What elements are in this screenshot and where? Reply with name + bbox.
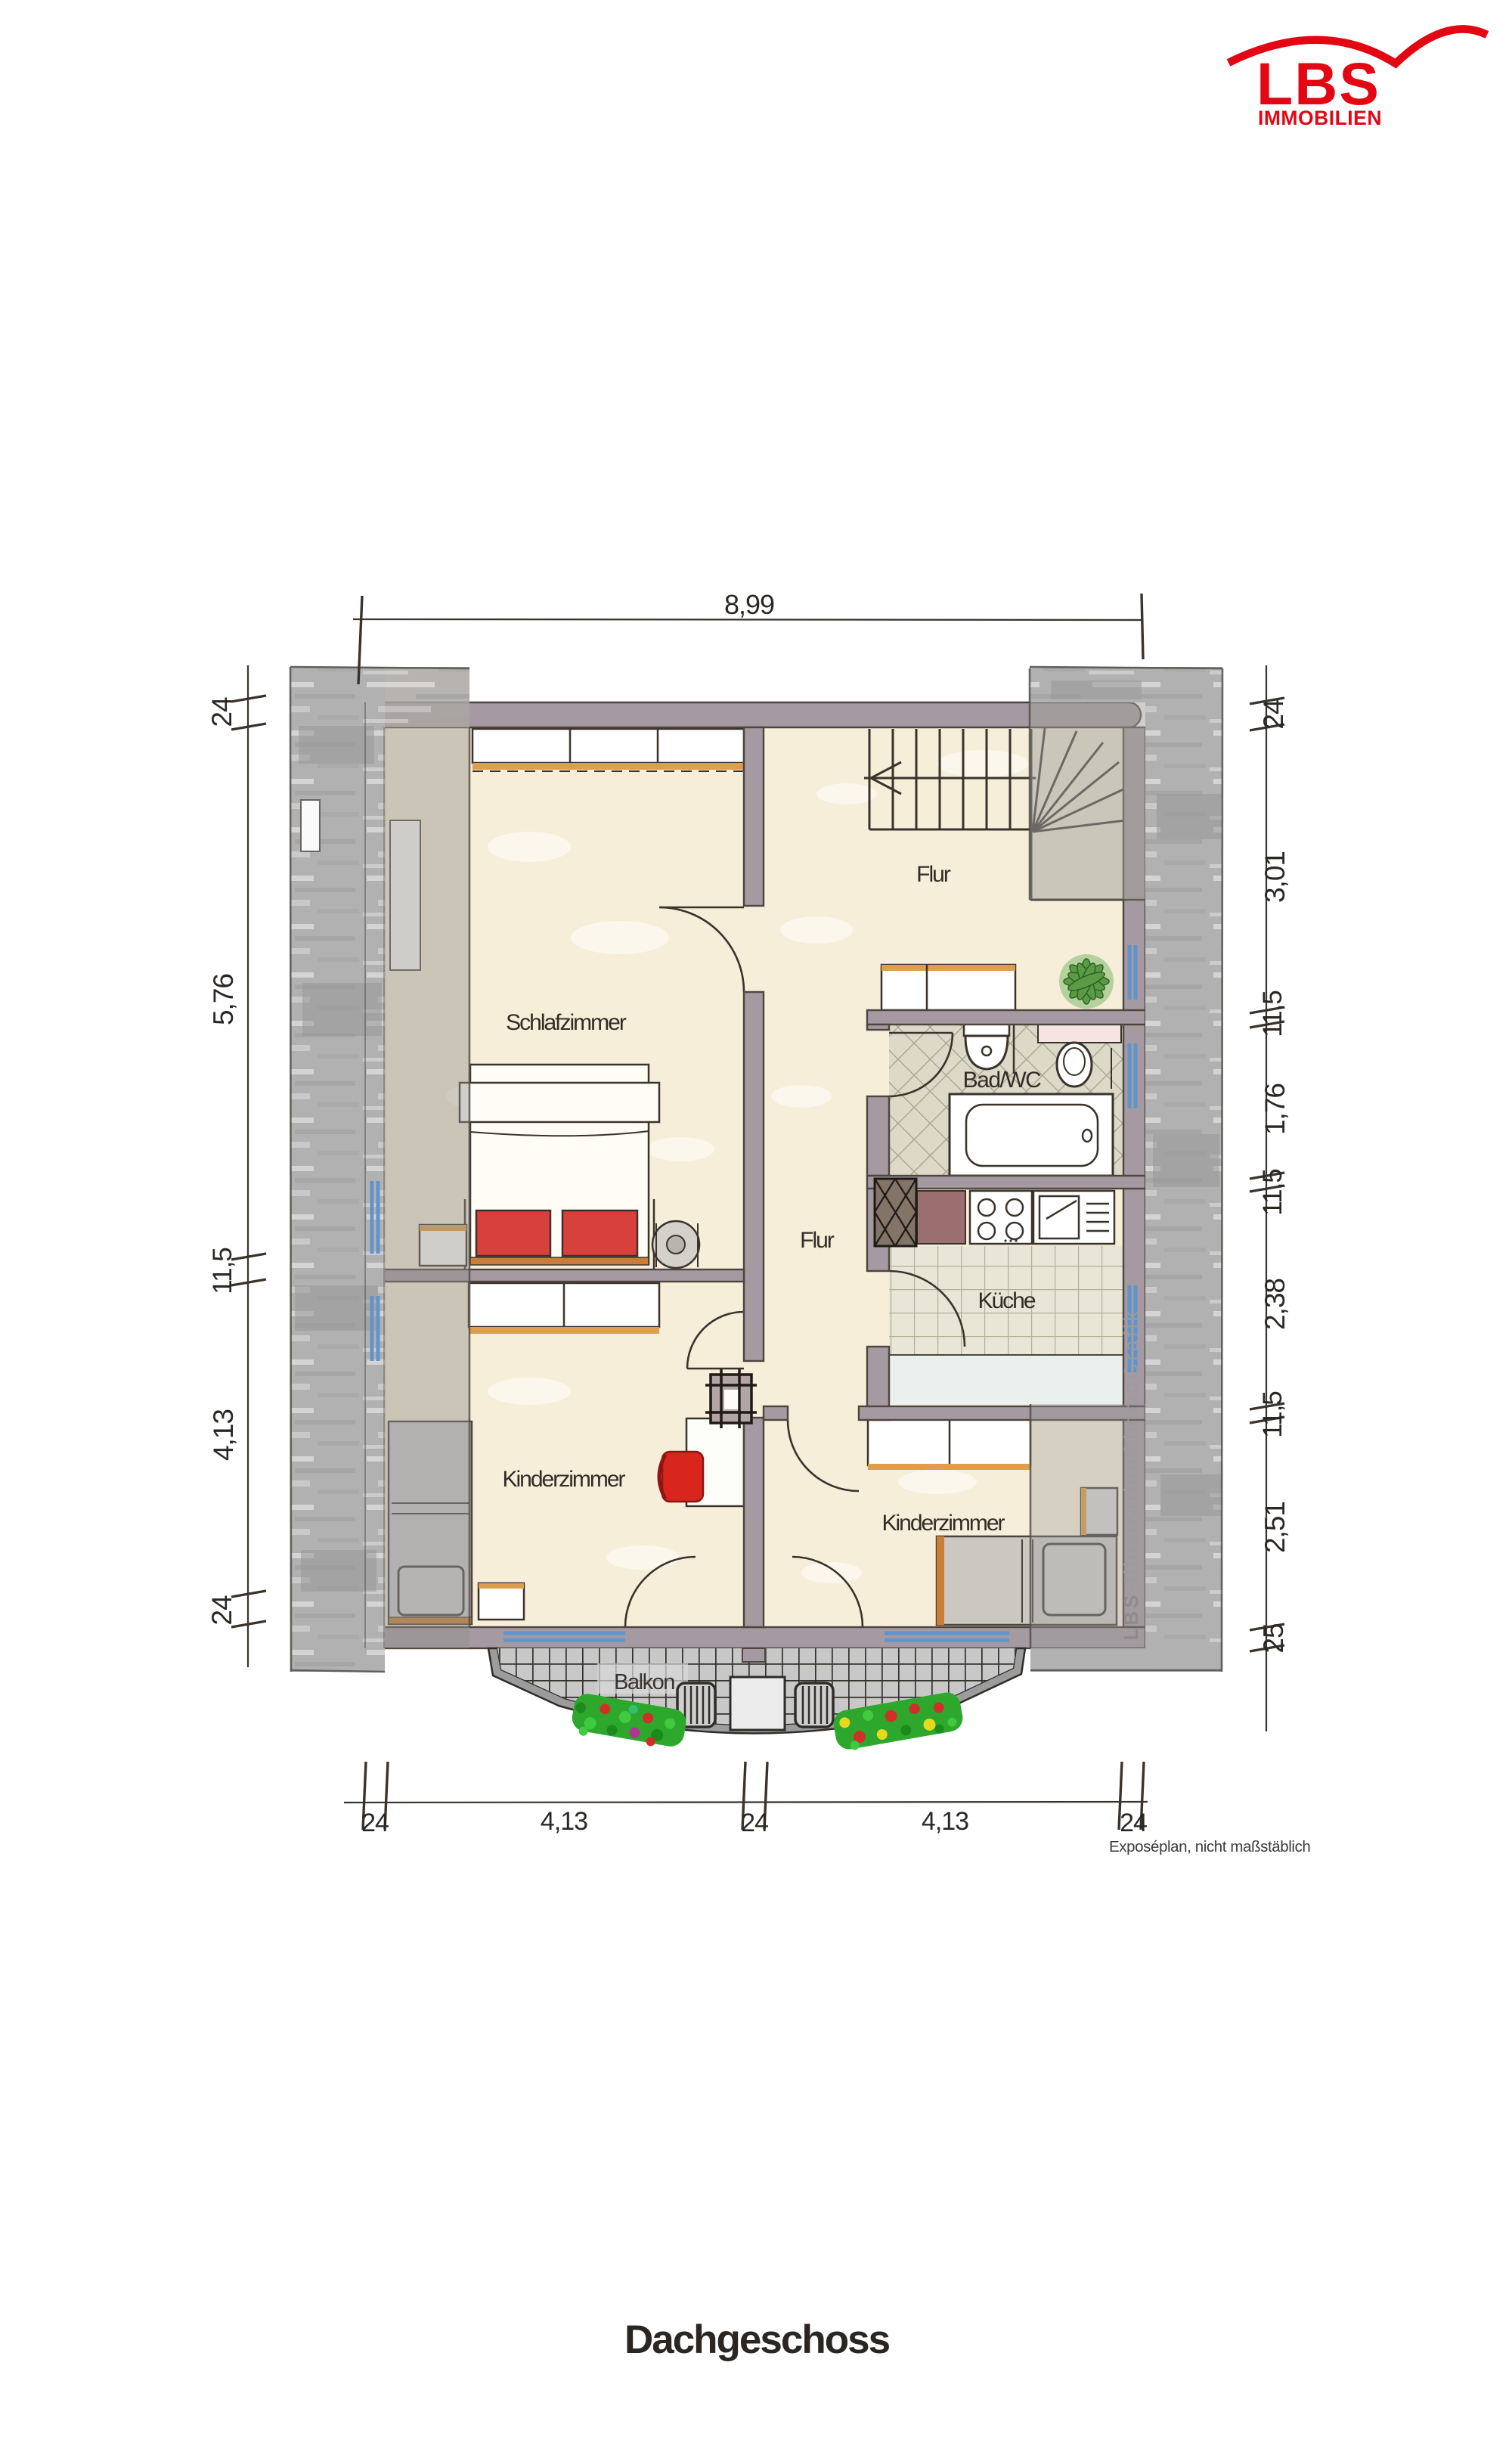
svg-text:8,99: 8,99	[724, 589, 774, 620]
svg-text:Kinderzimmer: Kinderzimmer	[502, 1467, 625, 1492]
svg-text:Flur: Flur	[916, 862, 951, 887]
svg-text:2,51: 2,51	[1259, 1502, 1290, 1553]
svg-text:4,13: 4,13	[541, 1807, 587, 1836]
svg-text:Dachgeschoss: Dachgeschoss	[624, 2317, 890, 2362]
svg-text:11,5: 11,5	[208, 1248, 237, 1294]
svg-text:1,76: 1,76	[1259, 1083, 1290, 1135]
svg-text:LBS-Illustration©immoGrafik: LBS-Illustration©immoGrafik	[1120, 1308, 1142, 1640]
svg-text:Schlafzimmer: Schlafzimmer	[506, 1010, 627, 1035]
svg-text:Balkon: Balkon	[614, 1670, 674, 1694]
svg-text:IMMOBILIEN: IMMOBILIEN	[1258, 107, 1382, 129]
svg-text:Küche: Küche	[978, 1288, 1035, 1313]
svg-text:24: 24	[1120, 1809, 1147, 1837]
svg-text:24: 24	[741, 1809, 768, 1837]
svg-text:25: 25	[1258, 1623, 1289, 1654]
svg-text:5,76: 5,76	[208, 974, 239, 1025]
svg-text:Bad/WC: Bad/WC	[963, 1068, 1042, 1093]
svg-text:Kinderzimmer: Kinderzimmer	[881, 1511, 1005, 1536]
svg-text:Flur: Flur	[800, 1228, 835, 1253]
svg-text:Exposéplan, nicht maßstäblich: Exposéplan, nicht maßstäblich	[1109, 1838, 1310, 1855]
svg-text:11,5: 11,5	[1258, 1169, 1287, 1216]
svg-text:24: 24	[206, 1595, 237, 1626]
svg-text:4,13: 4,13	[922, 1807, 968, 1836]
svg-text:24: 24	[361, 1809, 389, 1837]
svg-text:4,13: 4,13	[208, 1409, 239, 1461]
svg-text:2,38: 2,38	[1259, 1279, 1290, 1330]
svg-text:24: 24	[206, 697, 237, 727]
svg-text:3,01: 3,01	[1259, 851, 1290, 903]
svg-text:11,5: 11,5	[1258, 1391, 1287, 1438]
svg-text:24: 24	[1258, 699, 1289, 730]
svg-text:11,5: 11,5	[1258, 990, 1287, 1037]
